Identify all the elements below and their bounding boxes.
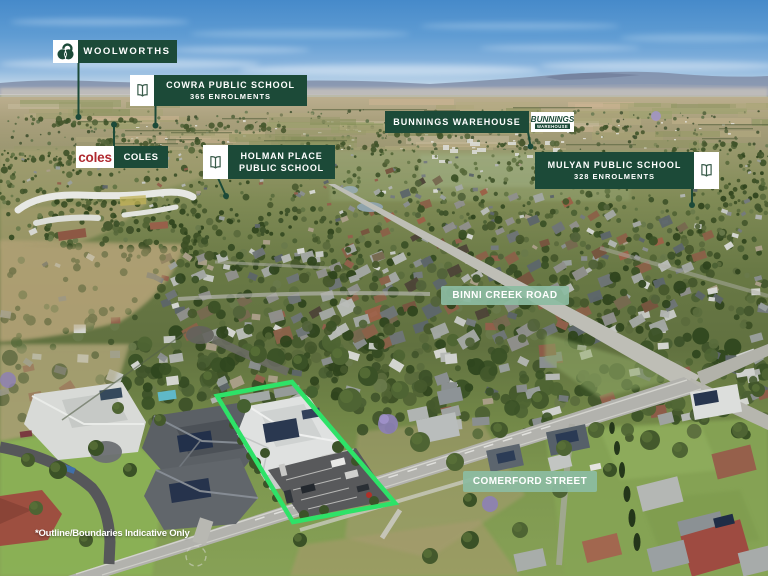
svg-text:WAREHOUSE: WAREHOUSE <box>537 124 568 129</box>
svg-text:BUNNINGS: BUNNINGS <box>531 115 574 124</box>
